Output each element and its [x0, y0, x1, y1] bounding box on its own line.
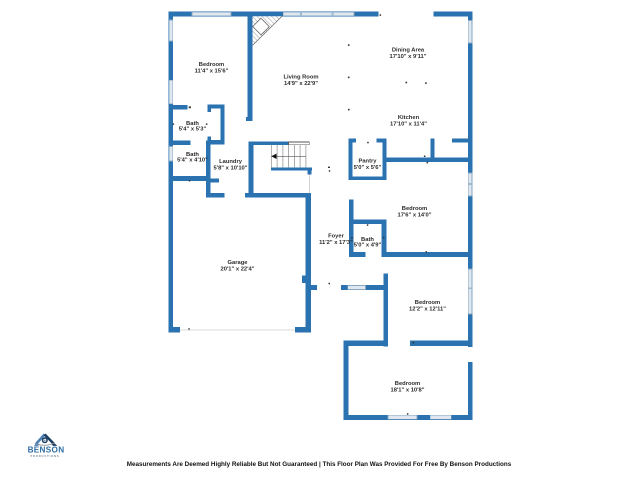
svg-text:5'4" x 5'3": 5'4" x 5'3"	[179, 126, 207, 132]
svg-text:Garage: Garage	[228, 260, 249, 266]
svg-text:Bedroom: Bedroom	[199, 62, 224, 68]
svg-text:17'10" x 9'11": 17'10" x 9'11"	[390, 54, 427, 60]
svg-text:12'2" x 12'11": 12'2" x 12'11"	[409, 307, 446, 313]
svg-text:17'6" x 14'0": 17'6" x 14'0"	[397, 212, 431, 218]
svg-text:Living Room: Living Room	[283, 74, 318, 80]
svg-text:20'1" x 22'4": 20'1" x 22'4"	[220, 267, 254, 273]
svg-text:Laundry: Laundry	[219, 159, 243, 165]
svg-text:BENSON: BENSON	[28, 445, 65, 454]
svg-text:5'4" x 4'10": 5'4" x 4'10"	[177, 158, 208, 164]
svg-text:5'0" x 4'9": 5'0" x 4'9"	[354, 242, 382, 248]
svg-text:17'10" x 11'4": 17'10" x 11'4"	[390, 122, 427, 128]
svg-text:Foyer: Foyer	[328, 233, 345, 239]
svg-text:Bedroom: Bedroom	[402, 206, 427, 212]
svg-text:PRODUCTIONS: PRODUCTIONS	[30, 454, 59, 458]
svg-text:Bedroom: Bedroom	[415, 300, 440, 306]
svg-text:5'0" x 5'6": 5'0" x 5'6"	[354, 165, 382, 171]
svg-text:5'8" x 10'10": 5'8" x 10'10"	[213, 165, 247, 171]
svg-text:Measurements Are Deemed Highly: Measurements Are Deemed Highly Reliable …	[127, 461, 512, 468]
svg-text:11'4" x 15'6": 11'4" x 15'6"	[195, 69, 229, 75]
svg-text:Dining Area: Dining Area	[392, 47, 425, 53]
svg-text:18'1" x 10'8": 18'1" x 10'8"	[390, 388, 424, 394]
svg-text:11'2" x 17'3": 11'2" x 17'3"	[319, 240, 353, 246]
svg-text:Kitchen: Kitchen	[398, 115, 420, 121]
svg-text:14'9" x 22'9": 14'9" x 22'9"	[284, 81, 318, 87]
svg-text:Bedroom: Bedroom	[395, 381, 420, 387]
svg-text:Pantry: Pantry	[358, 159, 377, 165]
